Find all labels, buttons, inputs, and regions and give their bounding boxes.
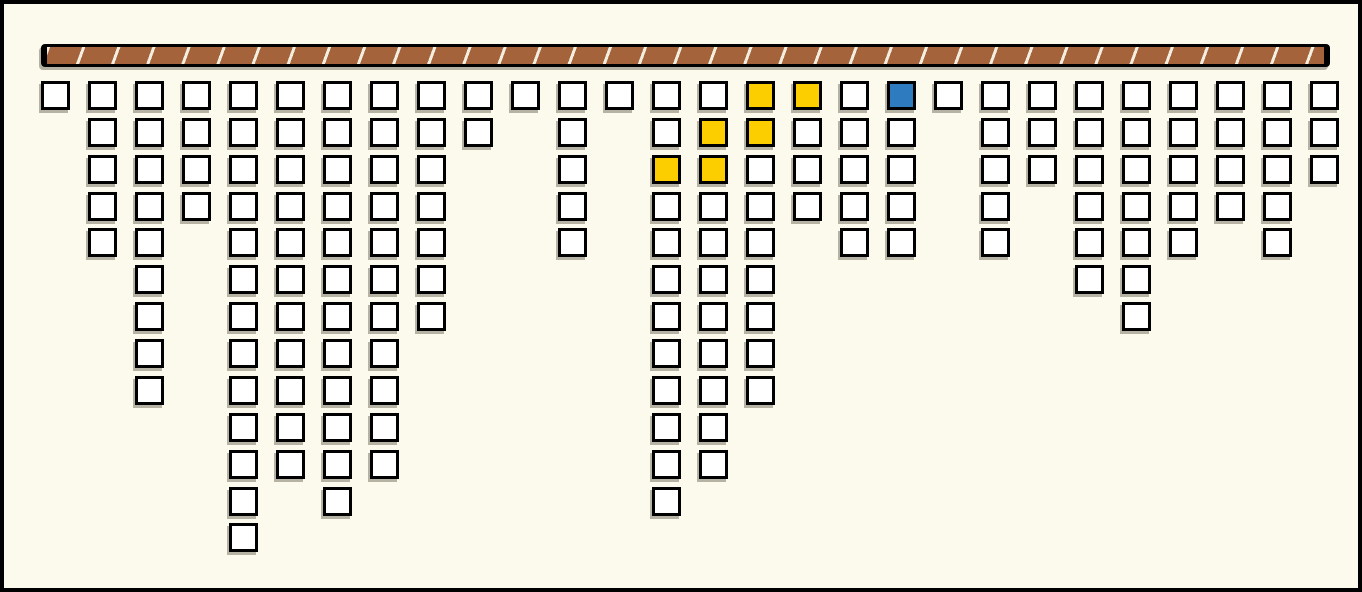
block[interactable] <box>558 118 587 147</box>
block[interactable] <box>41 81 70 110</box>
block[interactable] <box>135 118 164 147</box>
block[interactable] <box>323 376 352 405</box>
block[interactable] <box>135 376 164 405</box>
block[interactable] <box>464 81 493 110</box>
block[interactable] <box>323 118 352 147</box>
block[interactable] <box>229 302 258 331</box>
block[interactable] <box>652 339 681 368</box>
block[interactable] <box>229 118 258 147</box>
block[interactable] <box>558 192 587 221</box>
block[interactable] <box>417 155 446 184</box>
block[interactable] <box>229 450 258 479</box>
block[interactable] <box>1169 155 1198 184</box>
block[interactable] <box>229 228 258 257</box>
block[interactable] <box>746 302 775 331</box>
block[interactable] <box>276 302 305 331</box>
block[interactable] <box>699 339 728 368</box>
block[interactable] <box>229 81 258 110</box>
block[interactable] <box>1263 192 1292 221</box>
block-yellow[interactable] <box>793 81 822 110</box>
block[interactable] <box>229 265 258 294</box>
block[interactable] <box>793 192 822 221</box>
block-yellow[interactable] <box>746 118 775 147</box>
block[interactable] <box>558 228 587 257</box>
block[interactable] <box>88 192 117 221</box>
block[interactable] <box>229 192 258 221</box>
block[interactable] <box>276 450 305 479</box>
block[interactable] <box>229 523 258 552</box>
block[interactable] <box>1263 81 1292 110</box>
block[interactable] <box>652 228 681 257</box>
block[interactable] <box>1075 81 1104 110</box>
block[interactable] <box>652 81 681 110</box>
block[interactable] <box>417 81 446 110</box>
block[interactable] <box>652 302 681 331</box>
block[interactable] <box>276 376 305 405</box>
block[interactable] <box>88 118 117 147</box>
block[interactable] <box>1122 155 1151 184</box>
block[interactable] <box>135 228 164 257</box>
block[interactable] <box>229 487 258 516</box>
block[interactable] <box>370 155 399 184</box>
block[interactable] <box>276 265 305 294</box>
block[interactable] <box>323 192 352 221</box>
block[interactable] <box>1310 81 1339 110</box>
block[interactable] <box>1169 81 1198 110</box>
block[interactable] <box>182 118 211 147</box>
ceiling-bar <box>41 44 1330 67</box>
block[interactable] <box>746 155 775 184</box>
block[interactable] <box>981 228 1010 257</box>
block[interactable] <box>605 81 634 110</box>
block[interactable] <box>182 192 211 221</box>
block[interactable] <box>1122 302 1151 331</box>
block[interactable] <box>1122 228 1151 257</box>
block[interactable] <box>370 413 399 442</box>
block[interactable] <box>88 228 117 257</box>
block[interactable] <box>887 118 916 147</box>
block[interactable] <box>652 450 681 479</box>
block[interactable] <box>1263 228 1292 257</box>
block[interactable] <box>1075 192 1104 221</box>
block[interactable] <box>135 302 164 331</box>
block[interactable] <box>229 413 258 442</box>
block[interactable] <box>370 118 399 147</box>
block[interactable] <box>276 228 305 257</box>
block[interactable] <box>182 155 211 184</box>
block[interactable] <box>276 339 305 368</box>
game-board-canvas <box>0 0 1362 592</box>
block[interactable] <box>88 155 117 184</box>
block[interactable] <box>229 155 258 184</box>
block[interactable] <box>1216 81 1245 110</box>
block[interactable] <box>699 81 728 110</box>
block-yellow[interactable] <box>746 81 775 110</box>
block[interactable] <box>323 265 352 294</box>
block[interactable] <box>135 155 164 184</box>
block[interactable] <box>652 265 681 294</box>
block[interactable] <box>1216 118 1245 147</box>
block[interactable] <box>1122 81 1151 110</box>
block[interactable] <box>1263 155 1292 184</box>
block[interactable] <box>746 192 775 221</box>
block[interactable] <box>370 228 399 257</box>
block[interactable] <box>793 118 822 147</box>
block-blue[interactable] <box>887 81 916 110</box>
block[interactable] <box>652 487 681 516</box>
block[interactable] <box>370 192 399 221</box>
block[interactable] <box>699 265 728 294</box>
block[interactable] <box>840 155 869 184</box>
block[interactable] <box>1075 265 1104 294</box>
block[interactable] <box>323 413 352 442</box>
block-yellow[interactable] <box>652 155 681 184</box>
block[interactable] <box>652 118 681 147</box>
block[interactable] <box>276 81 305 110</box>
block[interactable] <box>699 302 728 331</box>
block[interactable] <box>323 450 352 479</box>
block[interactable] <box>323 81 352 110</box>
block[interactable] <box>1310 155 1339 184</box>
block[interactable] <box>1075 228 1104 257</box>
block[interactable] <box>699 450 728 479</box>
block[interactable] <box>1216 155 1245 184</box>
block[interactable] <box>840 192 869 221</box>
block[interactable] <box>135 81 164 110</box>
block[interactable] <box>558 81 587 110</box>
block[interactable] <box>417 302 446 331</box>
block[interactable] <box>1263 118 1292 147</box>
block[interactable] <box>276 413 305 442</box>
block[interactable] <box>981 192 1010 221</box>
block[interactable] <box>417 192 446 221</box>
block[interactable] <box>887 228 916 257</box>
block[interactable] <box>464 118 493 147</box>
block[interactable] <box>417 265 446 294</box>
block[interactable] <box>793 155 822 184</box>
block[interactable] <box>746 376 775 405</box>
block[interactable] <box>840 81 869 110</box>
block[interactable] <box>323 155 352 184</box>
block-yellow[interactable] <box>699 155 728 184</box>
block[interactable] <box>746 265 775 294</box>
block[interactable] <box>135 265 164 294</box>
block[interactable] <box>511 81 540 110</box>
block[interactable] <box>887 155 916 184</box>
block[interactable] <box>370 265 399 294</box>
block[interactable] <box>1075 155 1104 184</box>
block[interactable] <box>1169 118 1198 147</box>
block[interactable] <box>88 81 117 110</box>
block-yellow[interactable] <box>699 118 728 147</box>
block[interactable] <box>699 228 728 257</box>
block[interactable] <box>1028 155 1057 184</box>
block[interactable] <box>699 413 728 442</box>
block[interactable] <box>699 376 728 405</box>
block[interactable] <box>229 339 258 368</box>
block[interactable] <box>1169 228 1198 257</box>
block[interactable] <box>1122 192 1151 221</box>
block[interactable] <box>558 155 587 184</box>
block[interactable] <box>182 81 211 110</box>
block[interactable] <box>746 228 775 257</box>
block[interactable] <box>934 81 963 110</box>
block[interactable] <box>1075 118 1104 147</box>
block[interactable] <box>323 228 352 257</box>
block[interactable] <box>323 487 352 516</box>
block[interactable] <box>1028 81 1057 110</box>
block[interactable] <box>323 302 352 331</box>
block[interactable] <box>652 376 681 405</box>
block[interactable] <box>370 339 399 368</box>
block[interactable] <box>417 228 446 257</box>
block[interactable] <box>840 228 869 257</box>
block[interactable] <box>135 192 164 221</box>
block[interactable] <box>370 302 399 331</box>
block[interactable] <box>1122 265 1151 294</box>
block[interactable] <box>1310 118 1339 147</box>
block[interactable] <box>887 192 916 221</box>
block[interactable] <box>370 376 399 405</box>
block[interactable] <box>1216 192 1245 221</box>
block[interactable] <box>323 339 352 368</box>
block[interactable] <box>1169 192 1198 221</box>
block[interactable] <box>276 118 305 147</box>
block[interactable] <box>135 339 164 368</box>
block[interactable] <box>1028 118 1057 147</box>
block[interactable] <box>276 192 305 221</box>
block[interactable] <box>652 413 681 442</box>
block[interactable] <box>699 192 728 221</box>
block[interactable] <box>417 118 446 147</box>
block[interactable] <box>229 376 258 405</box>
block[interactable] <box>981 118 1010 147</box>
block[interactable] <box>840 118 869 147</box>
block[interactable] <box>370 450 399 479</box>
block[interactable] <box>652 192 681 221</box>
block[interactable] <box>276 155 305 184</box>
block[interactable] <box>981 81 1010 110</box>
block[interactable] <box>746 339 775 368</box>
block[interactable] <box>981 155 1010 184</box>
block[interactable] <box>370 81 399 110</box>
block[interactable] <box>1122 118 1151 147</box>
